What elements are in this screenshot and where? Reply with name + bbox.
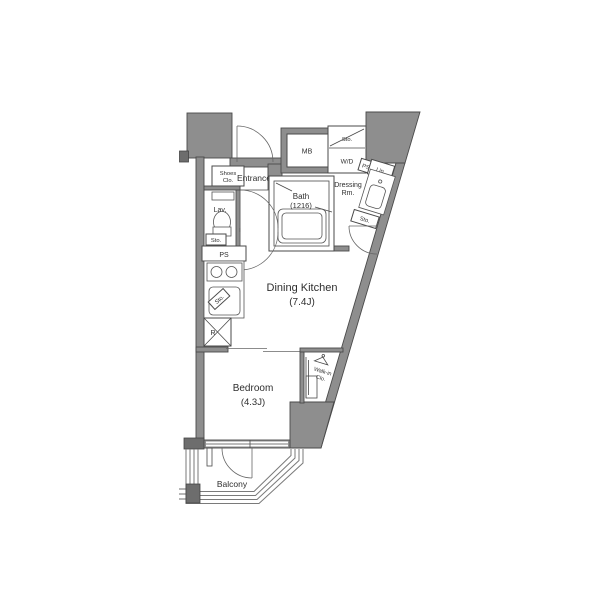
floorplan-page: Shoes Clo. Entrance MB Sto. W/D PS Lin. … bbox=[0, 0, 600, 600]
bathtub-inner bbox=[282, 213, 322, 239]
fridge-label: R bbox=[210, 330, 215, 337]
bottom-right-wall-block bbox=[290, 402, 334, 448]
bath-label-1: Bath bbox=[293, 192, 309, 201]
floorplan-svg: Shoes Clo. Entrance MB Sto. W/D PS Lin. … bbox=[0, 0, 600, 600]
entrance-door-arc bbox=[237, 126, 273, 162]
bath-label-2: (1216) bbox=[290, 201, 312, 210]
bath-room: Bath (1216) bbox=[269, 176, 334, 251]
hanger-hook bbox=[322, 354, 325, 357]
dressing-label-1: Dressing bbox=[334, 182, 362, 189]
wic-top-wall bbox=[300, 348, 343, 352]
ps-left-label: PS bbox=[219, 252, 229, 259]
burner-right bbox=[226, 267, 237, 278]
dressing-label-2: Rm. bbox=[342, 190, 355, 197]
dressing-bottom-wall bbox=[333, 246, 349, 251]
top-right-wall-block bbox=[366, 112, 420, 163]
top-left-wall-block bbox=[187, 113, 232, 158]
balcony-door-flap bbox=[207, 448, 212, 466]
sto-lav-label: Sto. bbox=[211, 238, 222, 244]
partition-solid bbox=[196, 347, 228, 352]
left-wall-notch bbox=[180, 151, 189, 162]
shoes-closet-label-1: Shoes bbox=[220, 171, 237, 177]
bottom-left-wall-cap bbox=[184, 438, 204, 449]
shoes-closet-label-2: Clo. bbox=[223, 178, 234, 184]
corridor-left-wall bbox=[236, 186, 240, 248]
balcony-area: Balcony bbox=[179, 441, 303, 504]
kitchen-unit: Sto. R bbox=[204, 261, 244, 346]
lav-shelf bbox=[212, 192, 234, 200]
wic-left-wall bbox=[300, 352, 304, 403]
washer-dryer-label: W/D bbox=[341, 159, 354, 166]
partition-wall bbox=[196, 347, 302, 352]
dining-kitchen-label-2: (7.4J) bbox=[289, 297, 315, 308]
bedroom-room: Bedroom (4.3J) bbox=[233, 383, 274, 408]
hanger-icon bbox=[314, 352, 330, 365]
bedroom-label-1: Bedroom bbox=[233, 383, 274, 394]
balcony-label: Balcony bbox=[217, 479, 248, 489]
left-exterior-wall bbox=[196, 157, 204, 442]
entrance-label: Entrance bbox=[237, 173, 271, 183]
bedroom-label-2: (4.3J) bbox=[241, 397, 265, 408]
meter-box-label: MB bbox=[302, 149, 313, 156]
dining-kitchen-label-1: Dining Kitchen bbox=[267, 282, 338, 294]
balcony-door-arc bbox=[222, 448, 252, 478]
sto-top-label: Sto. bbox=[342, 137, 353, 143]
lav-top-wall bbox=[204, 186, 240, 190]
wic-labels: Walk-in Clo. bbox=[311, 367, 332, 385]
vanity-faucet bbox=[378, 179, 382, 183]
balcony-drain-box bbox=[186, 484, 200, 503]
dining-kitchen-room: Dining Kitchen (7.4J) bbox=[267, 282, 338, 308]
burner-left bbox=[211, 267, 222, 278]
